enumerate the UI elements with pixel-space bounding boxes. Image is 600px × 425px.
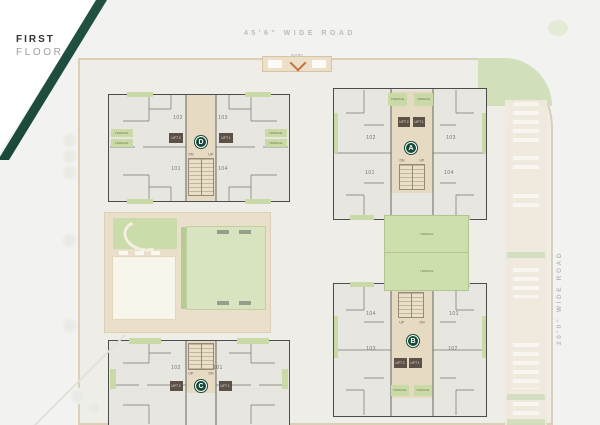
- block-a: TERRACE TERRACE LIFT 2 LIFT 1 A DNUP 102…: [333, 88, 487, 220]
- block-a-badge: A: [404, 141, 418, 155]
- balcony-strip: [110, 369, 116, 389]
- block-b-badge: B: [406, 334, 420, 348]
- balcony-strip: [245, 199, 271, 204]
- path-step: [151, 251, 160, 255]
- tree-icon: [62, 165, 77, 180]
- parking-row: [505, 100, 547, 425]
- unit-number: 104: [218, 166, 228, 172]
- entry-gate: [262, 56, 332, 72]
- parking-stalls: [513, 156, 539, 174]
- block-d-badge: D: [194, 135, 208, 149]
- unit-number: 101: [449, 311, 459, 317]
- unit-number: 102: [366, 135, 376, 141]
- unit-number: 101: [365, 170, 375, 176]
- unit-number: 101: [213, 365, 223, 371]
- balcony-strip: [350, 282, 374, 287]
- stairwell: [189, 344, 213, 369]
- garden: [113, 218, 177, 249]
- unit-number: 101: [171, 166, 181, 172]
- path-step: [119, 251, 128, 255]
- unit-number: 102: [448, 346, 458, 352]
- stair-direction: DNUP: [184, 151, 218, 158]
- page-title: FIRST: [16, 34, 55, 45]
- stair-direction: UPDN: [184, 370, 218, 377]
- lift-2: LIFT 2: [398, 117, 410, 127]
- parking-stalls: [513, 343, 539, 389]
- parking-stalls: [513, 194, 539, 212]
- bench-icon: [217, 301, 229, 305]
- entry-arrow-icon: [290, 55, 307, 72]
- terrace-box: TERRACE: [414, 385, 432, 396]
- unit-number: 103: [218, 115, 228, 121]
- unit-number: 102: [171, 365, 181, 371]
- terrace-box: TERRACE: [111, 129, 133, 137]
- lift-2: LIFT 2: [170, 381, 183, 391]
- balcony-strip: [350, 215, 374, 220]
- terrace-box: TERRACE: [414, 93, 433, 106]
- lift-2: LIFT 2: [169, 133, 183, 143]
- page-subtitle: FLOOR: [16, 47, 63, 58]
- road-label-top: 45'6" WIDE ROAD: [195, 30, 405, 37]
- parking-green-cap: [507, 419, 545, 425]
- parking-green-cap: [507, 394, 545, 400]
- bench-icon: [217, 230, 229, 234]
- balcony-strip: [129, 338, 161, 344]
- balcony-strip: [237, 338, 269, 344]
- lift-1: LIFT 1: [219, 381, 232, 391]
- podium-terrace: TERRACE: [385, 216, 468, 252]
- courtyard: [105, 213, 270, 332]
- parking-stalls: [513, 402, 539, 418]
- gate-slot: [268, 60, 282, 68]
- balcony-strip: [127, 92, 153, 97]
- tree-icon: [70, 388, 86, 404]
- terrace-box: TERRACE: [391, 385, 409, 396]
- lawn: [187, 227, 265, 309]
- bench-icon: [239, 301, 251, 305]
- balcony-strip: [127, 199, 153, 204]
- tree-icon: [62, 233, 77, 248]
- tree-icon: [62, 149, 77, 164]
- terrace-box: TERRACE: [111, 139, 133, 147]
- tree-icon: [62, 133, 77, 148]
- unit-number: 102: [173, 115, 183, 121]
- balcony-strip: [482, 316, 486, 358]
- block-b: UPDN B LIFT 2 LIFT 1 TERRACE TERRACE 104…: [333, 283, 487, 417]
- lift-1: LIFT 1: [409, 358, 422, 368]
- stairwell: [399, 293, 423, 317]
- path-step: [135, 251, 144, 255]
- balcony-strip: [334, 316, 338, 358]
- block-d: TERRACE TERRACE TERRACE TERRACE LIFT 2 L…: [108, 94, 290, 202]
- terrace-box: TERRACE: [388, 93, 407, 106]
- corner-green-patch: [478, 58, 552, 106]
- parking-green-cap: [507, 252, 545, 258]
- gate-slot: [312, 60, 326, 68]
- unit-number: 104: [444, 170, 454, 176]
- tree-icon: [86, 400, 102, 416]
- unit-number: 104: [366, 311, 376, 317]
- stairwell: [189, 159, 213, 195]
- stair-direction: UPDN: [395, 319, 429, 326]
- terrace-box: TERRACE: [265, 139, 287, 147]
- block-c: UPDN C LIFT 2 LIFT 1 102 101: [108, 340, 290, 425]
- balcony-strip: [482, 113, 486, 153]
- clubhouse-deck: [113, 257, 175, 319]
- unit-number: 103: [446, 135, 456, 141]
- block-c-badge: C: [194, 379, 208, 393]
- unit-number: 103: [366, 346, 376, 352]
- bench-icon: [239, 230, 251, 234]
- lift-1: LIFT 1: [219, 133, 233, 143]
- podium-terrace: TERRACE: [385, 253, 468, 290]
- terrace-box: TERRACE: [265, 129, 287, 137]
- lift-1: LIFT 1: [413, 117, 425, 127]
- balcony-strip: [282, 369, 288, 389]
- lift-2: LIFT 2: [394, 358, 407, 368]
- tree-icon: [62, 318, 77, 333]
- balcony-strip: [334, 113, 338, 153]
- balcony-strip: [245, 92, 271, 97]
- parking-stalls: [513, 268, 539, 298]
- tree-icon: [548, 20, 568, 36]
- stairwell: [400, 165, 424, 189]
- floor-plan-canvas: 45'6" WIDE ROAD 20'0" WIDE ROAD ENTRY TE…: [0, 0, 600, 425]
- stair-direction: DNUP: [395, 157, 429, 164]
- road-label-right: 20'0" WIDE ROAD: [556, 150, 563, 345]
- parking-stalls: [513, 102, 539, 144]
